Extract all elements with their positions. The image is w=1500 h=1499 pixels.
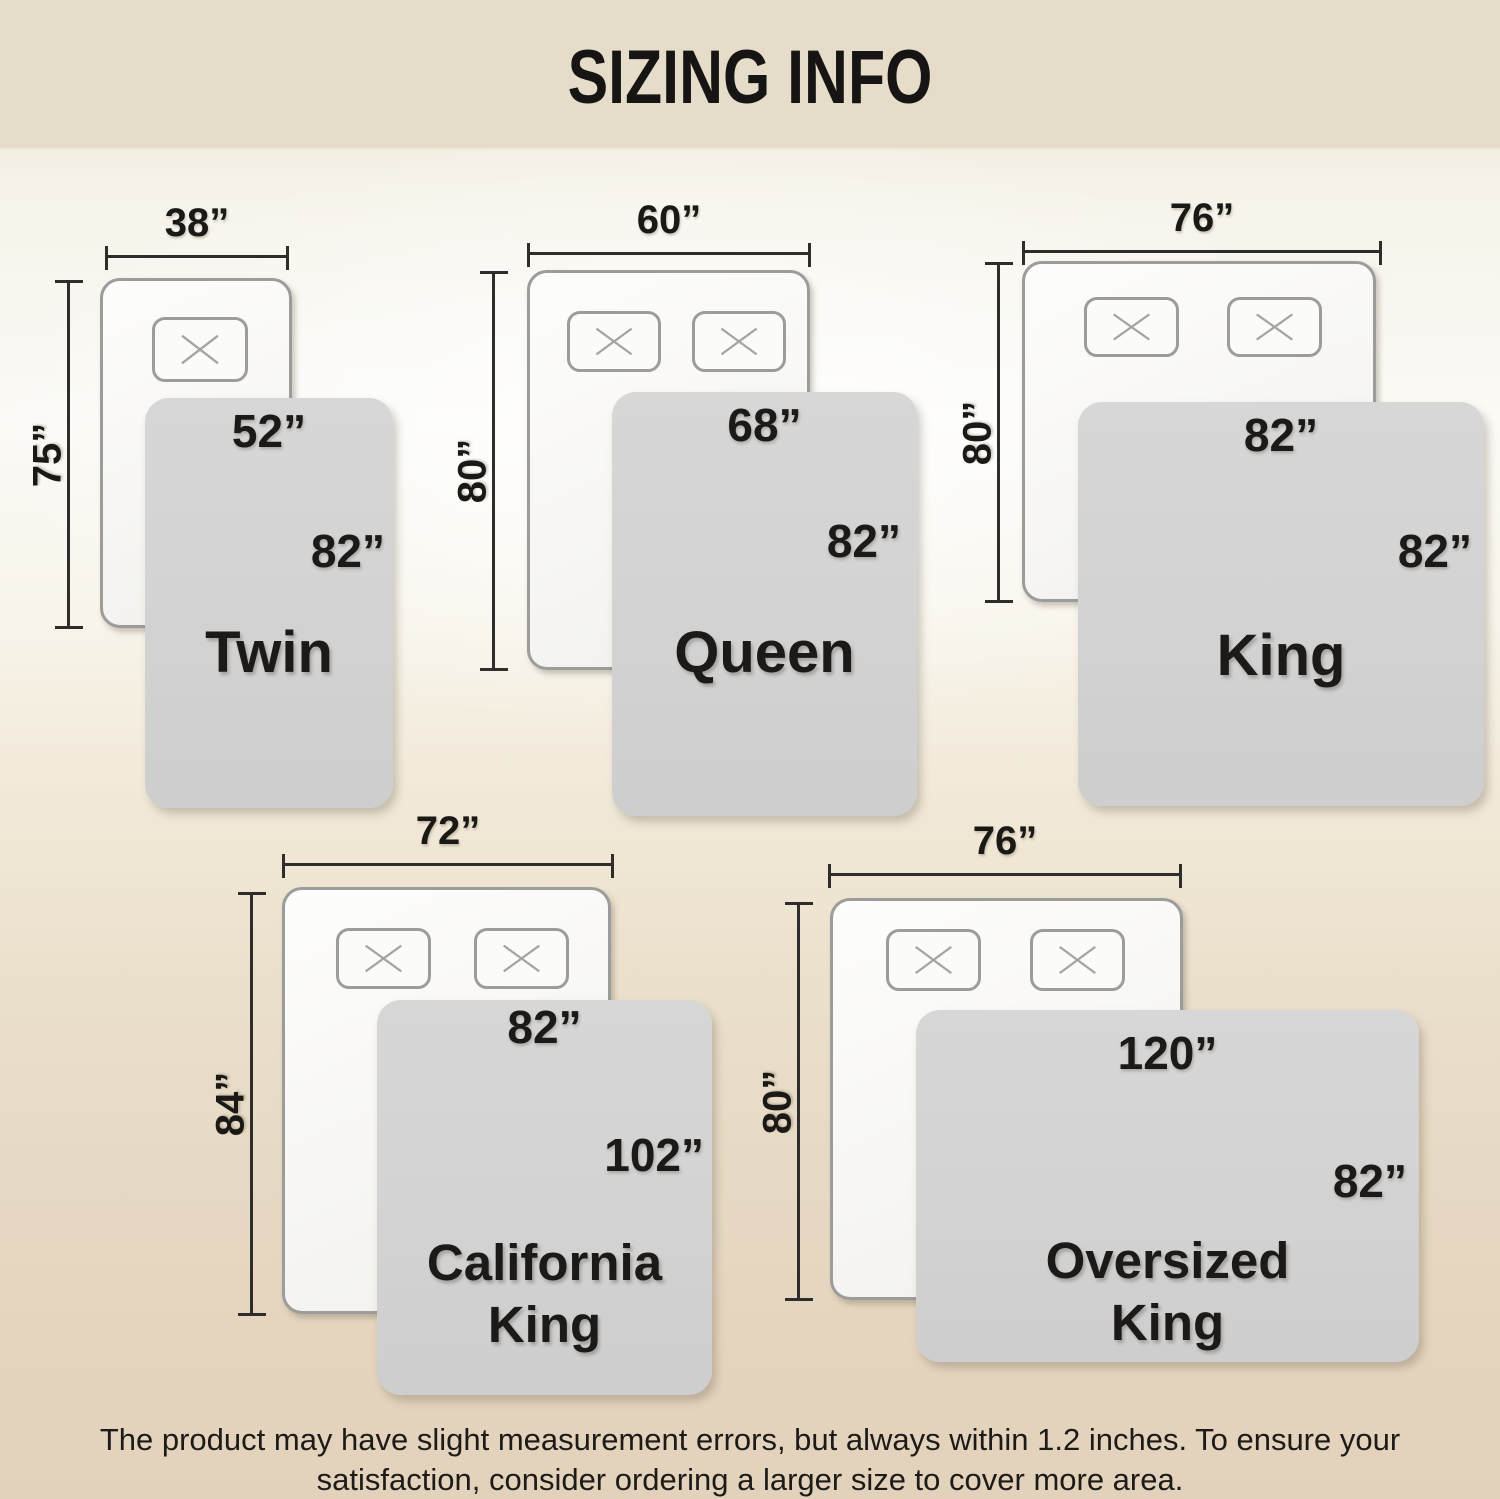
length-dimension-line: 84” xyxy=(250,893,253,1315)
width-dimension-line: 60” xyxy=(528,252,810,255)
blanket-width-label: 120” xyxy=(916,1026,1419,1080)
pillow-icon xyxy=(474,928,569,989)
size-name: Oversized King xyxy=(916,1230,1419,1354)
bed-length-label: 84” xyxy=(209,1072,254,1137)
sizing-infographic: SIZING INFO 38” 75” 52” 82” Twin 60” 80” xyxy=(0,0,1500,1499)
bed-width-label: 38” xyxy=(165,201,230,246)
pillow-icon xyxy=(1030,929,1125,991)
bed-width-label: 72” xyxy=(416,809,481,854)
length-dimension-line: 75” xyxy=(67,281,70,628)
disclaimer-line-1: The product may have slight measurement … xyxy=(30,1420,1470,1460)
width-dimension-line: 76” xyxy=(1023,250,1381,253)
pillow-icon xyxy=(692,311,786,372)
blanket-oversized-king: 120” 82” Oversized King xyxy=(916,1010,1419,1362)
width-dimension-line: 38” xyxy=(106,255,288,258)
pillow-icon xyxy=(1084,297,1179,357)
bed-length-label: 80” xyxy=(756,1069,801,1134)
bed-width-label: 76” xyxy=(1170,196,1235,241)
blanket-queen: 68” 82” Queen xyxy=(612,392,917,816)
pillow-icon xyxy=(886,929,981,991)
pillow-icon xyxy=(1227,297,1322,357)
size-name: California King xyxy=(377,1232,712,1356)
bed-width-label: 60” xyxy=(637,198,702,243)
size-name: Twin xyxy=(145,398,393,458)
page-title: SIZING INFO xyxy=(0,34,1500,121)
blanket-length-label: 82” xyxy=(311,524,385,578)
width-dimension-line: 76” xyxy=(829,873,1181,876)
blanket-length-label: 82” xyxy=(1333,1154,1407,1208)
pillow-icon xyxy=(152,317,248,382)
length-dimension-line: 80” xyxy=(797,903,800,1300)
size-name: King xyxy=(1078,402,1484,462)
disclaimer-text: The product may have slight measurement … xyxy=(30,1420,1470,1499)
bed-length-label: 80” xyxy=(956,400,1001,465)
blanket-width-label: 82” xyxy=(377,1000,712,1054)
bed-length-label: 80” xyxy=(451,439,496,504)
width-dimension-line: 72” xyxy=(283,863,613,866)
blanket-california-king: 82” 102” California King xyxy=(377,1000,712,1395)
disclaimer-line-2: satisfaction, consider ordering a larger… xyxy=(30,1460,1470,1499)
bed-width-label: 76” xyxy=(973,819,1038,864)
bed-length-label: 75” xyxy=(26,422,71,487)
blanket-length-label: 102” xyxy=(604,1128,704,1182)
blanket-length-label: 82” xyxy=(1398,524,1472,578)
size-name: Queen xyxy=(612,392,917,452)
pillow-icon xyxy=(567,311,661,372)
pillow-icon xyxy=(336,928,431,989)
blanket-king: 82” 82” King xyxy=(1078,402,1484,806)
blanket-twin: 52” 82” Twin xyxy=(145,398,393,808)
length-dimension-line: 80” xyxy=(492,272,495,670)
length-dimension-line: 80” xyxy=(997,263,1000,602)
blanket-length-label: 82” xyxy=(827,514,901,568)
